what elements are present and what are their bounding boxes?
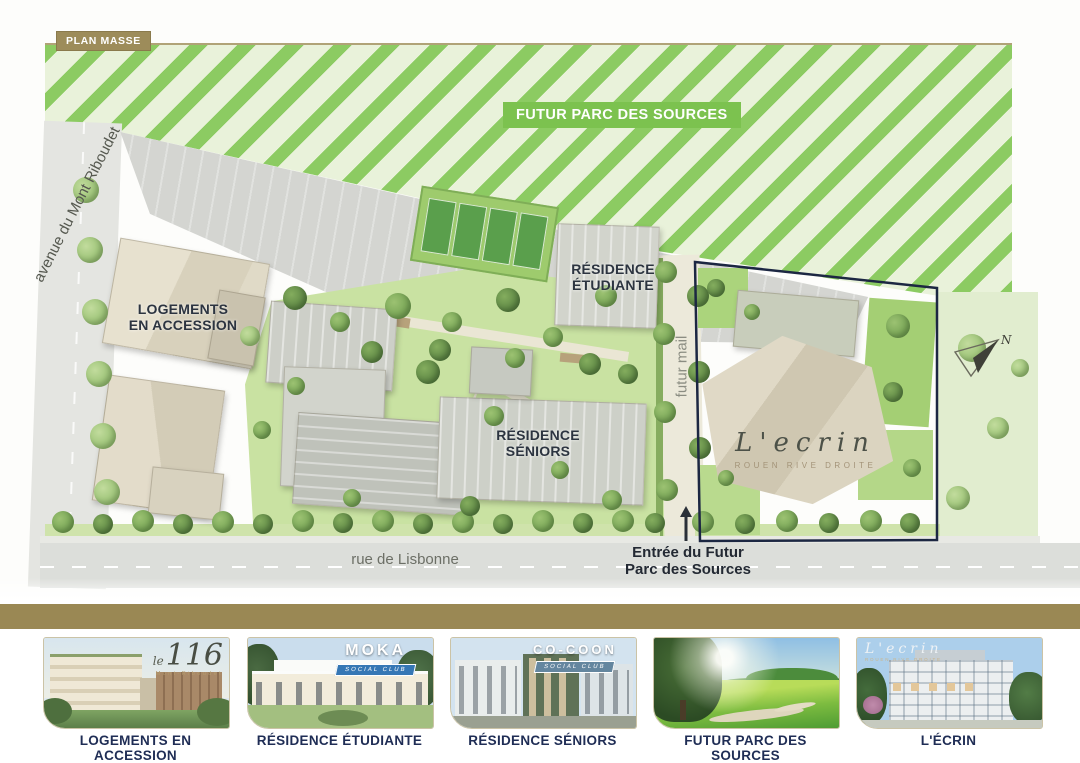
- thumbnail-photo: le116 Mont-Riboudet: [44, 638, 229, 728]
- label-line: Parc des Sources: [612, 561, 764, 578]
- label-line: ÉTUDIANTE: [552, 278, 674, 294]
- logo-subtitle: ROUEN RIVE DROITE: [865, 658, 942, 663]
- lecrin-parcel-outline: [680, 248, 950, 550]
- label-seniors: RÉSIDENCE SÉNIORS: [478, 428, 598, 459]
- site-plan: N PLAN MASSE FUTUR PARC DES SOURCES LOGE…: [0, 0, 1080, 610]
- divider-bar: [0, 604, 1080, 629]
- tennis-court: [512, 212, 548, 270]
- thumbnail-accession: le116 Mont-Riboudet: [43, 637, 230, 729]
- future-park-banner: FUTUR PARC DES SOURCES: [503, 102, 741, 128]
- building-accession-d: [148, 466, 225, 520]
- cocoon-logo: CO-COON SOCIAL CLUB: [533, 643, 617, 673]
- logo-name: CO-COON: [533, 643, 617, 656]
- label-accession: LOGEMENTS EN ACCESSION: [118, 302, 248, 333]
- entrance-label: Entrée du Futur Parc des Sources: [612, 544, 764, 579]
- logo-subtitle: SOCIAL CLUB: [335, 664, 417, 676]
- logo-number: 116: [166, 638, 223, 673]
- label-line: RÉSIDENCE: [478, 428, 598, 444]
- lecrin-plan-logo: L'ecrin ROUEN RIVE DROITE: [718, 428, 893, 470]
- futur-mail-label: futur mail: [674, 277, 691, 457]
- north-label: N: [1000, 333, 1012, 347]
- moka-logo: MOKA SOCIAL CLUB: [336, 643, 415, 676]
- thumbnail-photo: MOKA SOCIAL CLUB: [248, 638, 433, 728]
- logo-subtitle: SOCIAL CLUB: [534, 661, 616, 673]
- label-etudiante: RÉSIDENCE ÉTUDIANTE: [552, 262, 674, 293]
- tennis-court: [482, 208, 518, 266]
- tennis-court: [421, 198, 457, 256]
- caption-seniors: RÉSIDENCE SÉNIORS: [450, 733, 635, 748]
- caption-accession: LOGEMENTS EN ACCESSION: [43, 733, 228, 763]
- caption-lecrin: L'ÉCRIN: [856, 733, 1041, 748]
- logo-name: L'ecrin: [865, 642, 942, 656]
- label-line: SÉNIORS: [478, 444, 598, 460]
- label-line: RÉSIDENCE: [552, 262, 674, 278]
- caption-etudiante: RÉSIDENCE ÉTUDIANTE: [247, 733, 432, 748]
- logo-subtitle: Mont-Riboudet: [153, 672, 223, 678]
- north-arrow-icon: N: [950, 330, 1016, 386]
- thumbnail-lecrin: L'ecrin ROUEN RIVE DROITE: [856, 637, 1043, 729]
- thumbnail-seniors: CO-COON SOCIAL CLUB: [450, 637, 637, 729]
- caption-park: FUTUR PARC DES SOURCES: [653, 733, 838, 763]
- label-line: EN ACCESSION: [118, 318, 248, 334]
- thumbnail-park: [653, 637, 840, 729]
- thumbnail-photo: [654, 638, 839, 728]
- plan-masse-badge: PLAN MASSE: [56, 31, 151, 51]
- lecrin-thumb-logo: L'ecrin ROUEN RIVE DROITE: [865, 642, 942, 663]
- lecrin-subtitle: ROUEN RIVE DROITE: [718, 461, 893, 470]
- street-verge: [45, 524, 660, 536]
- label-line: Entrée du Futur: [612, 544, 764, 561]
- label-line: LOGEMENTS: [118, 302, 248, 318]
- rue-lisbonne-label: rue de Lisbonne: [330, 551, 480, 568]
- lecrin-name: L'ecrin: [718, 428, 893, 458]
- thumbnail-etudiante: MOKA SOCIAL CLUB: [247, 637, 434, 729]
- tennis-court: [451, 203, 487, 261]
- building-mid-d: [469, 346, 533, 396]
- thumbnail-photo: CO-COON SOCIAL CLUB: [451, 638, 636, 728]
- park-zone-border: [45, 43, 1012, 45]
- thumbnail-photo: L'ecrin ROUEN RIVE DROITE: [857, 638, 1042, 728]
- entrance-arrow-icon: [679, 506, 693, 542]
- logo-prefix: le: [153, 654, 164, 668]
- logo-name: MOKA: [336, 643, 415, 659]
- le116-logo: le116 Mont-Riboudet: [153, 641, 223, 678]
